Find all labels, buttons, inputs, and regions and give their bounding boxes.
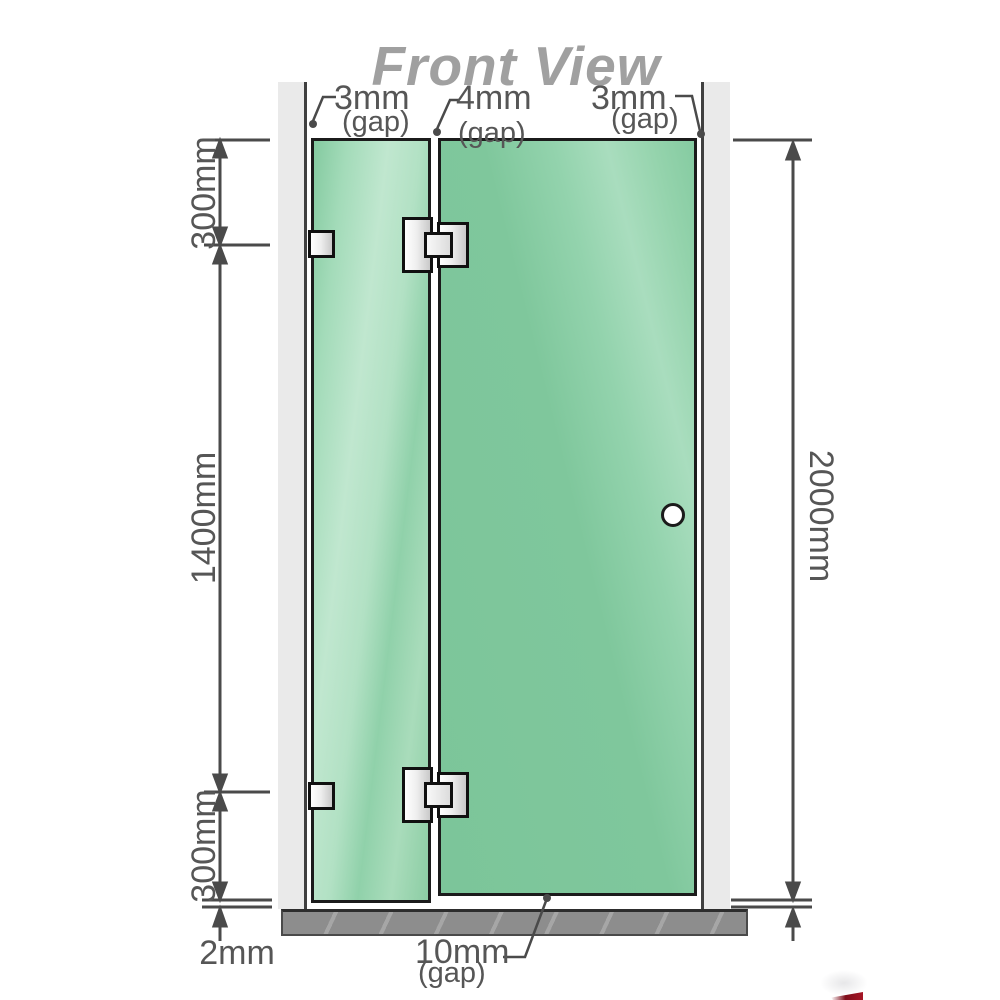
left-wall <box>278 82 307 909</box>
shower-screen-front-view-diagram: Front View <box>0 0 1000 1000</box>
page-title: Front View <box>316 34 716 98</box>
right-dimension-lines <box>731 140 812 941</box>
dim-label-2000mm: 2000mm <box>804 450 838 582</box>
gap-label-middle-unit: (gap) <box>458 119 526 148</box>
wall-bracket-top <box>308 230 335 258</box>
dim-label-2mm: 2mm <box>199 936 275 970</box>
bottom-hinge-knuckle <box>424 782 453 808</box>
dim-label-1400mm: 1400mm <box>187 452 221 584</box>
glass-door-panel <box>438 138 697 896</box>
door-handle-knob <box>661 503 685 527</box>
gap-label-bottom-unit: (gap) <box>418 959 486 988</box>
top-hinge-knuckle <box>424 232 453 258</box>
wall-bracket-bottom <box>308 782 335 810</box>
floor-base <box>281 909 748 936</box>
dim-label-300mm-bottom: 300mm <box>187 789 221 902</box>
dim-label-300mm-top: 300mm <box>187 136 221 249</box>
watermark-smudge <box>820 970 868 996</box>
gap-label-left-unit: (gap) <box>342 108 410 137</box>
gap-label-right-unit: (gap) <box>611 105 679 134</box>
right-wall <box>701 82 730 909</box>
